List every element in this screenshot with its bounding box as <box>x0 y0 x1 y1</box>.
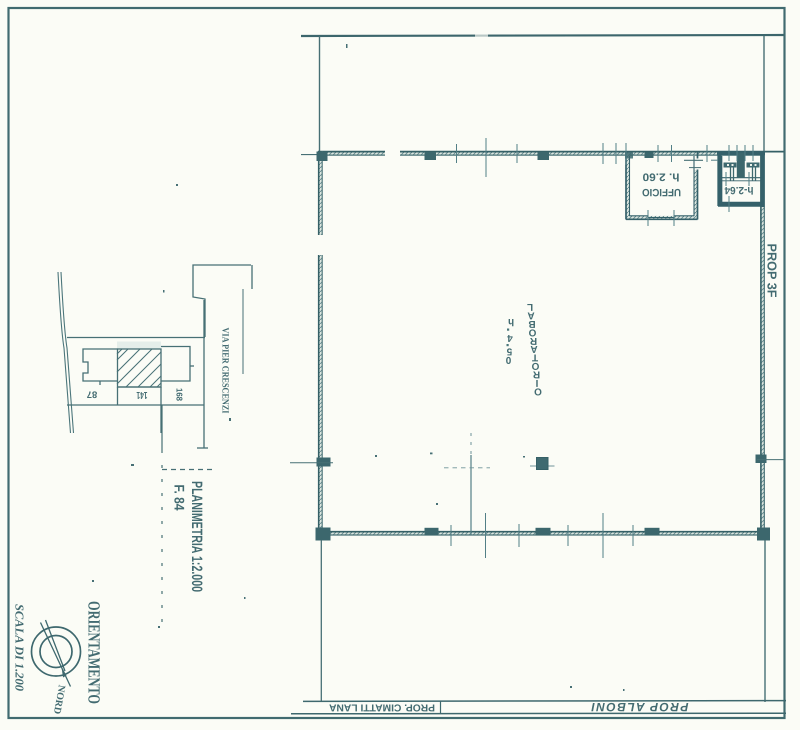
svg-text:SCALA DI 1.200: SCALA DI 1.200 <box>13 604 27 691</box>
svg-text:ORIENTAMENTO: ORIENTAMENTO <box>85 601 104 704</box>
svg-text:0: 0 <box>505 354 511 365</box>
svg-text:h-2.64: h-2.64 <box>724 184 753 196</box>
svg-text:VIA PIER CRESCENZI: VIA PIER CRESCENZI <box>220 328 230 414</box>
svg-text:PLANIMETRIA 1:2.000: PLANIMETRIA 1:2.000 <box>188 481 205 592</box>
svg-text:168: 168 <box>175 388 185 401</box>
svg-text:h: h <box>508 316 514 327</box>
svg-text:NORD: NORD <box>51 684 67 715</box>
svg-text:F. 84: F. 84 <box>172 485 188 511</box>
svg-text:PROP. CIMATTI LANA: PROP. CIMATTI LANA <box>329 702 435 713</box>
svg-text:PROP ALBONI: PROP ALBONI <box>591 700 689 714</box>
svg-text:141: 141 <box>136 389 147 400</box>
svg-text:PROP 3F: PROP 3F <box>765 244 780 298</box>
svg-text:87: 87 <box>87 389 98 400</box>
svg-text:h. 2.60: h. 2.60 <box>643 171 680 183</box>
svg-text:4: 4 <box>507 332 513 343</box>
svg-text:UFFICIO: UFFICIO <box>642 186 681 198</box>
svg-text:O: O <box>534 386 542 397</box>
